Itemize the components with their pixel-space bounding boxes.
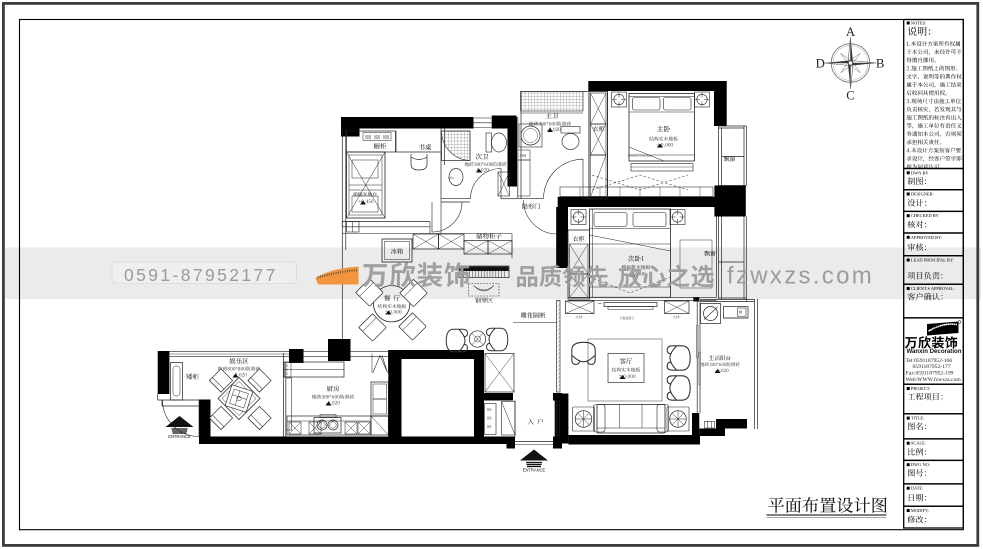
- svg-text:APPROVED BY:: APPROVED BY:: [911, 235, 942, 240]
- svg-text:D: D: [816, 57, 825, 71]
- svg-text:TITLE:: TITLE:: [911, 416, 924, 421]
- svg-text:B: B: [876, 57, 885, 71]
- svg-text:PROJECT:: PROJECT:: [911, 386, 931, 391]
- svg-text:C: C: [846, 88, 855, 102]
- svg-text:DWG NO:: DWG NO:: [911, 462, 930, 467]
- svg-text:DATE:: DATE:: [911, 486, 923, 491]
- svg-text:Wanxin Decoration: Wanxin Decoration: [907, 348, 962, 355]
- svg-text:NOTES:: NOTES:: [911, 21, 926, 26]
- svg-text:LEAD PRINCIPAL BY:: LEAD PRINCIPAL BY:: [911, 258, 954, 263]
- svg-text:Fax:0591187952-199: Fax:0591187952-199: [906, 371, 954, 377]
- svg-text:MODIFY:: MODIFY:: [911, 508, 929, 513]
- svg-text:SCALE:: SCALE:: [911, 441, 926, 446]
- svg-text:0591-87952177: 0591-87952177: [124, 265, 278, 285]
- svg-text:0591187952-177: 0591187952-177: [906, 364, 951, 370]
- svg-text:CLIENT S APPROVAL:: CLIENT S APPROVAL:: [911, 286, 955, 291]
- svg-text:DESIGNER:: DESIGNER:: [911, 192, 934, 197]
- svg-text:DWN BY: DWN BY: [911, 170, 930, 175]
- svg-text:fzwxzs.com: fzwxzs.com: [727, 263, 874, 290]
- svg-text:ENTRANCE: ENTRANCE: [523, 467, 546, 472]
- svg-text:Web:WWW.fzwxzs.com: Web:WWW.fzwxzs.com: [906, 376, 962, 383]
- svg-text:CHECKED BY: CHECKED BY: [911, 213, 940, 218]
- svg-text:ENTRANCE: ENTRANCE: [168, 434, 191, 439]
- svg-text:A: A: [846, 25, 856, 39]
